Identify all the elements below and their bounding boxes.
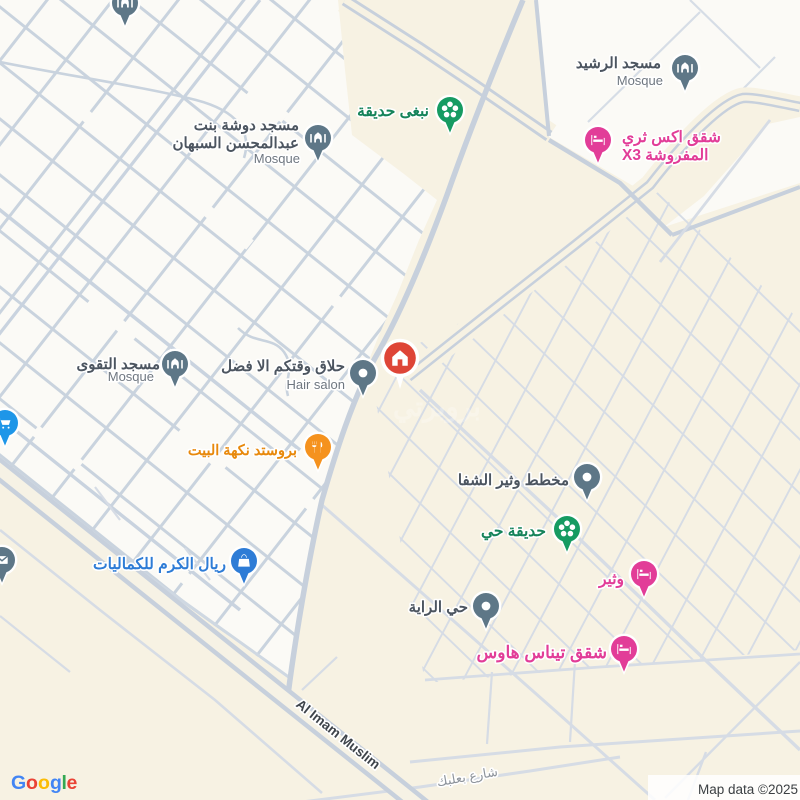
svg-text:Hair salon: Hair salon [286,377,345,392]
svg-text:حلاق وقتكم الا فضل: حلاق وقتكم الا فضل [221,358,345,375]
svg-text:e: e [67,772,78,794]
svg-text:o: o [26,772,38,794]
svg-text:عبدالمحسن السبهان: عبدالمحسن السبهان [172,135,299,152]
svg-text:g: g [50,772,62,794]
svg-text:مخطط وثير الشفا: مخطط وثير الشفا [458,472,569,489]
svg-text:بروبرتي: بروبرتي [393,392,481,424]
svg-text:ريال الكرم للكماليات: ريال الكرم للكماليات [93,556,226,574]
svg-text:Mosque: Mosque [254,151,300,166]
svg-text:Mosque: Mosque [108,369,154,384]
svg-text:مسجد الرشيد: مسجد الرشيد [576,55,661,72]
svg-text:وثير: وثير [598,571,624,589]
svg-text:مسجد دوشة بنت: مسجد دوشة بنت [194,117,299,134]
svg-text:شقق تيناس هاوس: شقق تيناس هاوس [477,643,608,663]
svg-text:نبغى حديقة: نبغى حديقة [357,103,429,120]
svg-text:حي الراية: حي الراية [409,599,468,617]
svg-text:G: G [11,772,26,794]
svg-text:بروستد نكهة البيت: بروستد نكهة البيت [188,443,297,459]
svg-text:Map data ©2025: Map data ©2025 [698,782,798,797]
svg-text:Mosque: Mosque [617,73,663,88]
svg-text:حديقة حي: حديقة حي [481,523,546,541]
svg-text:X3 المفروشة: X3 المفروشة [622,147,708,165]
svg-text:o: o [38,772,50,794]
svg-text:شقق اكس ثري: شقق اكس ثري [622,129,721,147]
